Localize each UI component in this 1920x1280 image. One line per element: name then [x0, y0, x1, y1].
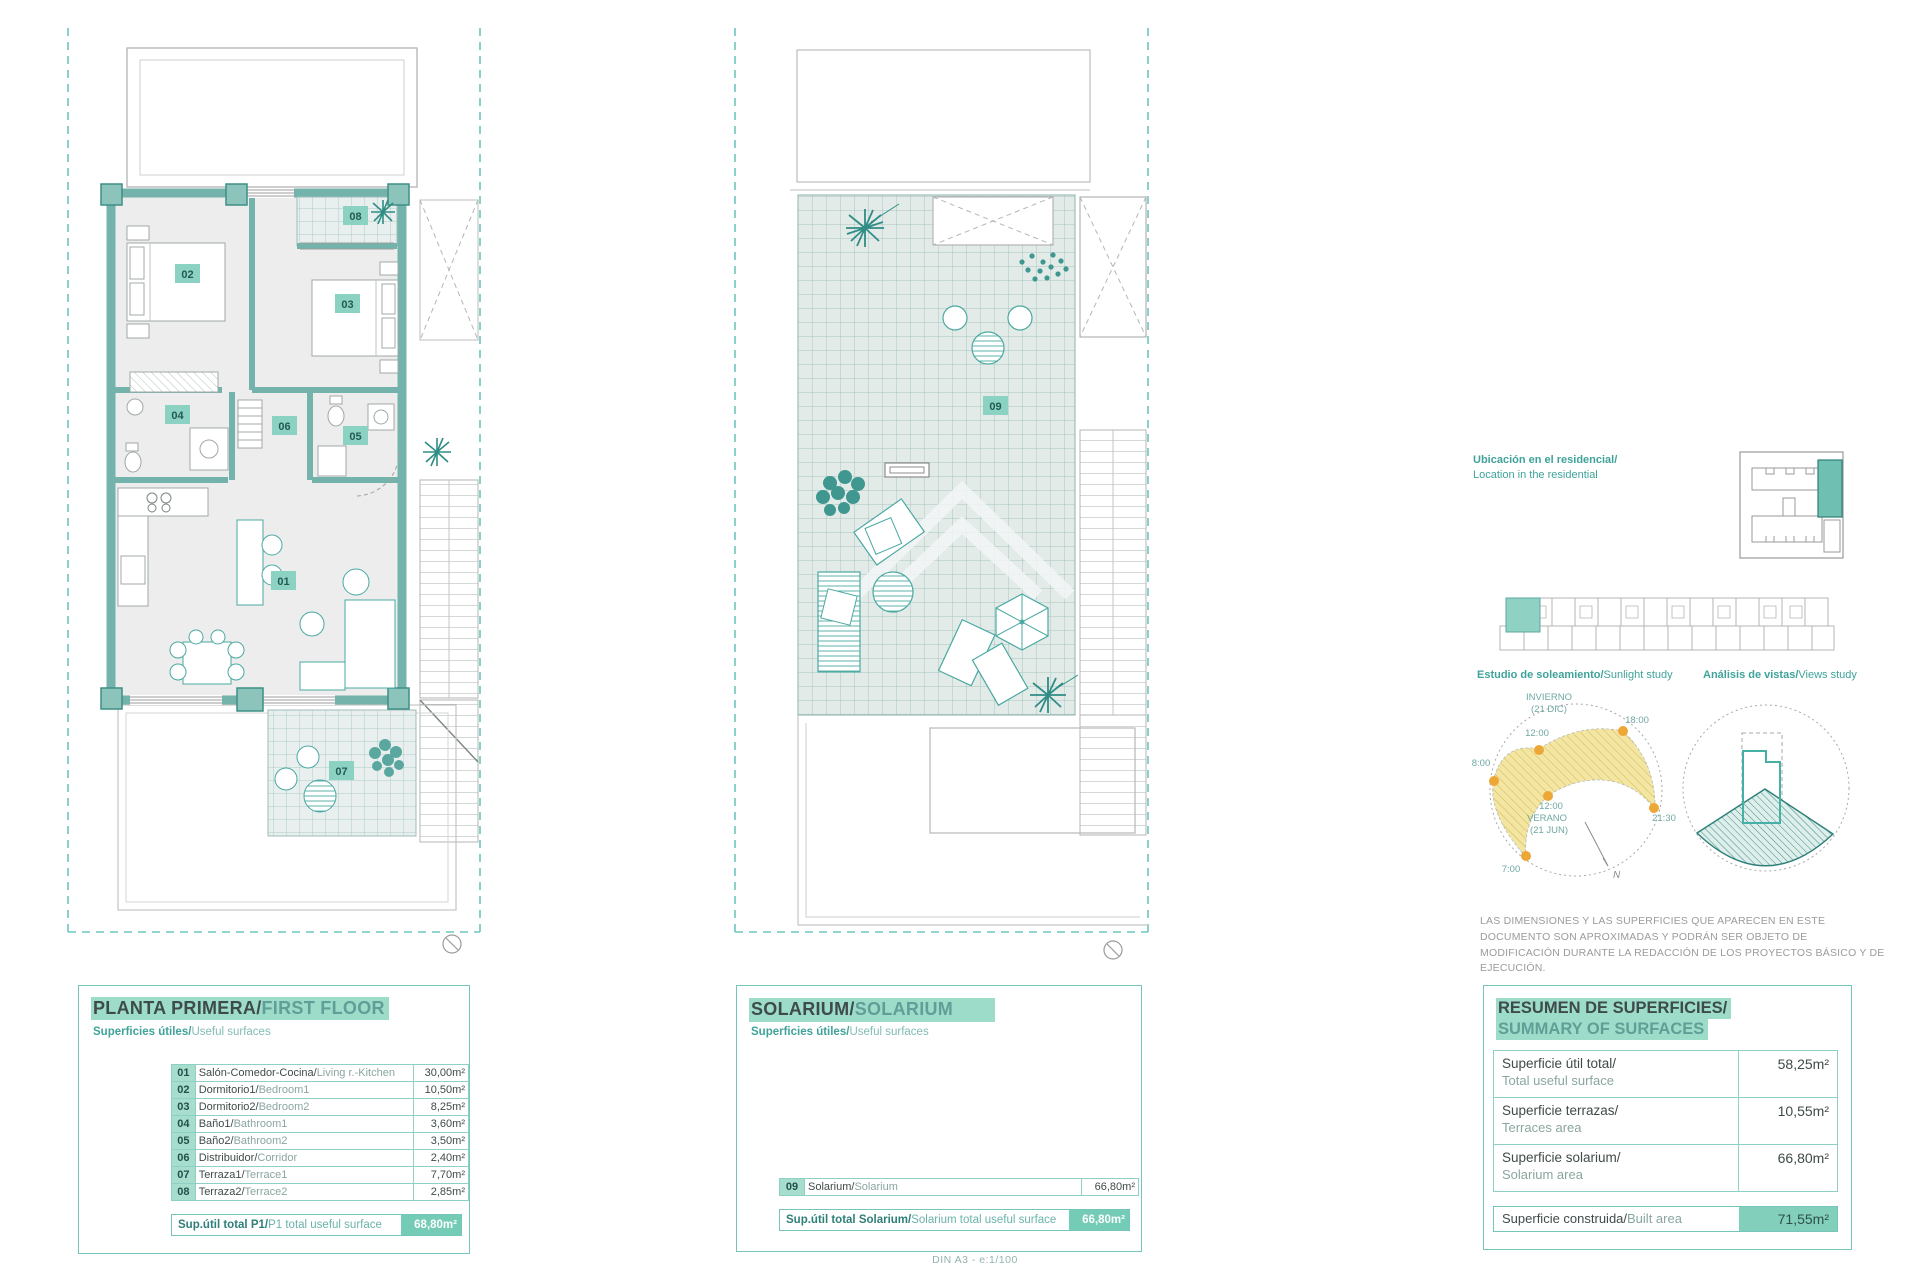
location-site-plan	[1740, 452, 1843, 558]
time-0800: 8:00	[1472, 758, 1491, 769]
table-row: 07Terraza1/Terrace17,70m²	[172, 1167, 469, 1184]
sheet-scale-note: DIN A3 - e:1/100	[850, 1254, 1100, 1266]
table-row: 01Salón-Comedor-Cocina/Living r.-Kitchen…	[172, 1065, 469, 1082]
solarium-stairs	[1080, 430, 1146, 835]
side-stairs	[420, 200, 478, 842]
summary-panel: RESUMEN DE SUPERFICIES/ SUMMARY OF SURFA…	[1483, 985, 1852, 1250]
time-2130: 21:30	[1652, 813, 1676, 824]
sunlight-label-en: Sunlight study	[1604, 669, 1673, 681]
first-floor-panel-title: PLANTA PRIMERA/FIRST FLOOR	[91, 998, 389, 1019]
room-label-05: 05	[349, 431, 361, 443]
table-row: 06Distribuidor/Corridor2,40m²	[172, 1150, 469, 1167]
solarium-panel-subtitle: Superficies útiles/Useful surfaces	[751, 1026, 929, 1038]
floor-total-bar: Sup.útil total P1/P1 total useful surfac…	[171, 1214, 462, 1236]
room-label-08: 08	[349, 211, 361, 223]
table-row: 03Dormitorio2/Bedroom28,25m²	[172, 1099, 469, 1116]
built-area-row: Superficie construida/Built area 71,55m²	[1493, 1206, 1838, 1232]
location-label-en: Location in the residential	[1473, 469, 1598, 481]
first-floor-plan: 02 03 08 04 06 05 01 07	[40, 10, 525, 965]
corridor-stair	[238, 400, 262, 448]
summer-label-3: (21 JUN)	[1530, 825, 1568, 836]
views-label-es: Análisis de vistas/	[1703, 669, 1798, 681]
floor-total-value: 68,80m²	[401, 1215, 461, 1235]
location-label: Ubicación en el residencial/ Location in…	[1473, 453, 1617, 483]
building-outline	[1743, 751, 1780, 823]
summary-table: Superficie útil total/Total useful surfa…	[1493, 1050, 1838, 1192]
solarium-panel-title: SOLARIUM/SOLARIUM	[749, 998, 995, 1022]
table-row: Superficie terrazas/Terraces area 10,55m…	[1494, 1098, 1837, 1145]
room-label-01: 01	[277, 576, 289, 588]
sunlight-study-label: Estudio de soleamiento/Sunlight study	[1477, 668, 1673, 683]
table-row: 08Terraza2/Terrace22,85m²	[172, 1184, 469, 1201]
sunlight-diagram: INVIERNO (21 DIC) 12:00 18:00 8:00 12:00…	[1472, 692, 1676, 881]
solarium-surface-table: 09 Solarium/Solarium 66,80m²	[779, 1178, 1139, 1196]
sunlight-label-es: Estudio de soleamiento/	[1477, 669, 1604, 681]
panel-title-en: FIRST FLOOR	[262, 998, 385, 1018]
time-0700: 7:00	[1502, 864, 1521, 875]
disclaimer-text: LAS DIMENSIONES Y LAS SUPERFICIES QUE AP…	[1480, 914, 1890, 977]
room-label-03: 03	[341, 299, 353, 311]
upper-roof-outline	[790, 50, 1090, 190]
north-letter: N	[1613, 870, 1621, 881]
views-label-en: Views study	[1798, 669, 1857, 681]
table-row: 04Baño1/Bathroom13,60m²	[172, 1116, 469, 1133]
solarium-plan: 09	[590, 10, 1170, 970]
first-floor-panel-subtitle: Superficies útiles/Useful surfaces	[93, 1026, 271, 1038]
room-label-09: 09	[989, 401, 1001, 413]
north-indicator	[443, 935, 461, 953]
north-indicator	[1104, 941, 1122, 959]
time-1800: 18:00	[1625, 715, 1649, 726]
panel-title-es: PLANTA PRIMERA/	[93, 998, 262, 1018]
room-label-07: 07	[335, 766, 347, 778]
views-study-label: Análisis de vistas/Views study	[1703, 668, 1857, 683]
room-badges: 09	[983, 396, 1008, 415]
winter-label-2: (21 DIC)	[1531, 704, 1567, 715]
table-row: 09 Solarium/Solarium 66,80m²	[780, 1179, 1139, 1196]
upper-roof-outline	[127, 48, 417, 187]
room-surface-table: 01Salón-Comedor-Cocina/Living r.-Kitchen…	[171, 1064, 469, 1201]
winter-label-1: INVIERNO	[1526, 692, 1572, 703]
built-area-value: 71,55m²	[1739, 1207, 1837, 1231]
room-label-02: 02	[181, 269, 193, 281]
time-1200: 12:00	[1525, 728, 1549, 739]
summary-title: RESUMEN DE SUPERFICIES/ SUMMARY OF SURFA…	[1496, 998, 1731, 1040]
table-row: 05Baño2/Bathroom23,50m²	[172, 1133, 469, 1150]
solarium-total-value: 66,80m²	[1069, 1210, 1129, 1230]
summer-label-1: 12:00	[1539, 801, 1563, 812]
building-strip	[1500, 598, 1834, 650]
first-floor-panel: PLANTA PRIMERA/FIRST FLOOR Superficies ú…	[78, 985, 470, 1254]
solarium-panel: SOLARIUM/SOLARIUM Superficies útiles/Use…	[736, 985, 1142, 1252]
room-label-06: 06	[278, 421, 290, 433]
plan-sheet: 02 03 08 04 06 05 01 07	[0, 0, 1920, 1280]
sun-path-band	[1493, 729, 1655, 857]
north-arrow: N	[1585, 822, 1621, 881]
views-diagram	[1683, 705, 1849, 871]
solarium-total-bar: Sup.útil total Solarium/Solarium total u…	[779, 1209, 1130, 1231]
table-row: Superficie solarium/Solarium area 66,80m…	[1494, 1145, 1837, 1191]
location-label-es: Ubicación en el residencial/	[1473, 454, 1617, 466]
table-row: 02Dormitorio1/Bedroom110,50m²	[172, 1082, 469, 1099]
table-row: Superficie útil total/Total useful surfa…	[1494, 1051, 1837, 1098]
room-label-04: 04	[171, 410, 184, 422]
summer-label-2: VERANO	[1527, 813, 1567, 824]
